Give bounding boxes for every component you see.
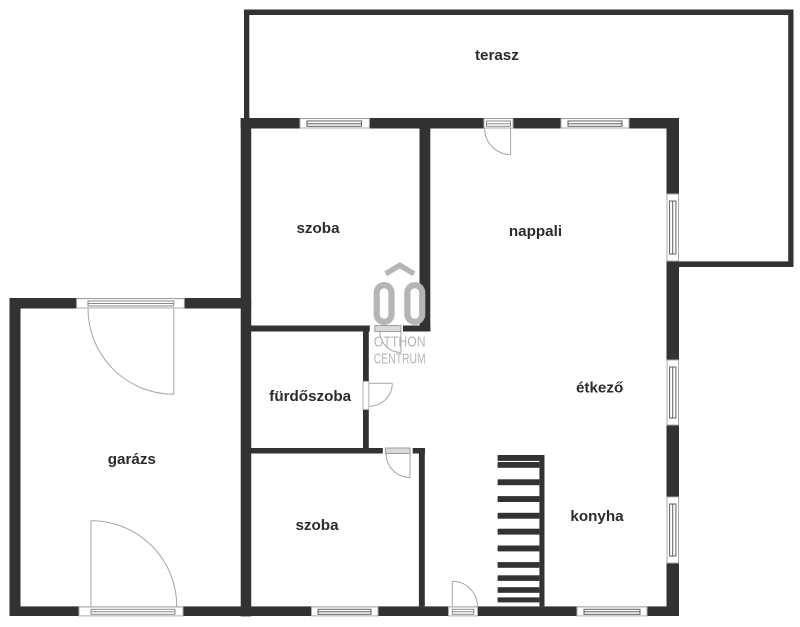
svg-text:szoba: szoba (296, 220, 340, 237)
svg-text:fürdőszoba: fürdőszoba (269, 388, 351, 405)
svg-text:szoba: szoba (295, 517, 339, 534)
svg-text:CENTRUM: CENTRUM (374, 351, 426, 368)
svg-text:terasz: terasz (475, 47, 519, 64)
svg-text:garázs: garázs (108, 451, 156, 468)
svg-text:nappali: nappali (509, 223, 562, 240)
svg-text:konyha: konyha (570, 508, 624, 525)
svg-text:OTTHON: OTTHON (374, 334, 426, 351)
svg-text:étkező: étkező (576, 379, 623, 396)
